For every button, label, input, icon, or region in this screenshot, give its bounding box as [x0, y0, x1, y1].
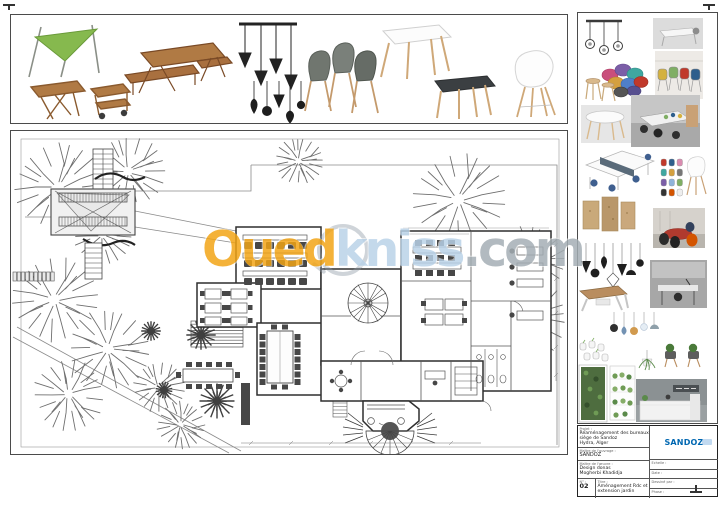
- furniture-strip-panel: [10, 14, 568, 124]
- furniture-strip: [11, 15, 567, 123]
- team-cell: Maître de l'œuvre : Design donas Mogherb…: [578, 461, 649, 479]
- serving-cart: [91, 84, 130, 119]
- folding-table: [31, 81, 85, 119]
- team-line2: Mogherbi Khadidja: [578, 471, 649, 476]
- executive-desk-photo: [650, 260, 707, 308]
- outdoor-dining-table: [176, 362, 240, 389]
- project-cell: Projet : Réaménagement des bureaux siège…: [578, 426, 649, 448]
- desk-photo: [653, 18, 703, 49]
- mini-chair-color-grid: [661, 159, 683, 196]
- white-shell-chair: [687, 157, 706, 195]
- client-name: SANDOZ: [578, 453, 649, 459]
- glass-pendant-lamps: [610, 312, 659, 335]
- meta-row-date: Date :: [649, 470, 718, 480]
- pendant-lights-row: [239, 24, 297, 89]
- pendant-lights-cluster: [251, 81, 305, 123]
- plan-number: 02: [578, 484, 595, 490]
- phase-label: Phase :: [650, 489, 718, 494]
- meta-row-drawn: Dessiné par :: [649, 479, 718, 489]
- sheet-title: Aménagement Rdc et extension jardin: [596, 484, 649, 494]
- garden-stairs-upper: [93, 149, 113, 189]
- bean-bag-poufs: [602, 64, 648, 97]
- open-office-photo: [631, 95, 700, 147]
- floor-plan: [11, 131, 567, 454]
- oval-table-photo: [581, 105, 631, 143]
- industrial-pendant-lamp: [586, 21, 623, 55]
- scandinavian-chairs: [305, 43, 378, 113]
- cork-panels: [583, 197, 635, 231]
- living-green-wall: [579, 365, 607, 422]
- conference-room: [241, 325, 301, 426]
- spiral-staircase: [348, 283, 388, 323]
- meeting-room-photo: [653, 208, 705, 248]
- floor-plan-panel: [10, 130, 568, 455]
- black-square-table: [435, 76, 495, 119]
- garden-stairs-lower: [85, 243, 102, 279]
- scale-label: Echelle :: [650, 460, 718, 465]
- magnifier-icon: [317, 224, 369, 276]
- presentation-sheet: { "sheet": {"type": "architectural-prese…: [0, 0, 724, 505]
- project-line2: Hydra, Alger: [578, 441, 649, 446]
- title-block: Projet : Réaménagement des bureaux siège…: [577, 425, 718, 497]
- logo-cell: SANDOZ: [649, 426, 718, 460]
- sheet-title-cell: Titre : Aménagement Rdc et extension jar…: [596, 479, 649, 498]
- white-square-table: [381, 25, 451, 79]
- plan-number-cell: N° : 02: [578, 479, 596, 498]
- reception-desk-photo: [636, 379, 707, 422]
- meta-row-phase: Phase :: [649, 489, 718, 499]
- client-cell: Maître de l'ouvrage : SANDOZ: [578, 448, 649, 461]
- shade-sail: [29, 25, 99, 77]
- meta-row-scale: Echelle :: [649, 460, 718, 470]
- white-shell-armchair: [515, 51, 555, 117]
- meeting-room: [413, 240, 461, 276]
- moodboard-panel: [577, 12, 718, 424]
- date-label: Date :: [650, 470, 718, 475]
- drawn-by-label: Dessiné par :: [650, 479, 718, 484]
- small-meeting-room: [200, 289, 253, 325]
- black-pendant-cluster: [581, 243, 644, 287]
- wall-mounted-vases: [580, 338, 608, 361]
- picnic-table: [125, 43, 232, 95]
- wood-top-desk: [580, 286, 628, 311]
- modular-green-wall: [610, 366, 635, 420]
- hanging-planter: [639, 350, 655, 370]
- project-line1: Réaménagement des bureaux siège de Sando…: [578, 431, 649, 441]
- white-workstations: [586, 151, 654, 192]
- colorful-shell-chairs: [655, 51, 703, 99]
- sandoz-logo: SANDOZ: [664, 438, 703, 447]
- moodboard: [578, 13, 717, 423]
- chairs-with-plants: [665, 344, 700, 367]
